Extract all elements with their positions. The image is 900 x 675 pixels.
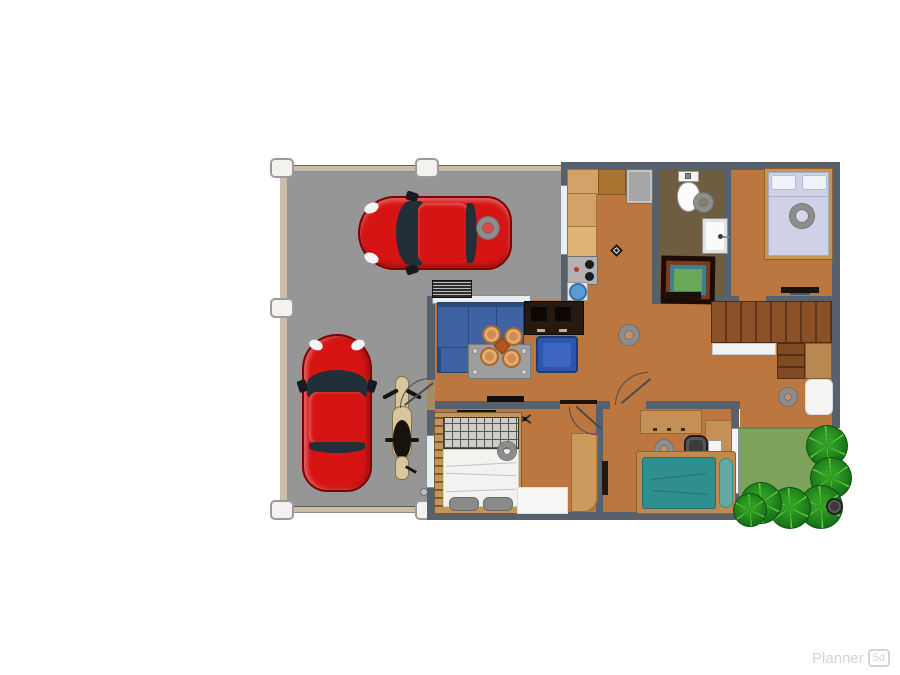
fridge[interactable] [626, 169, 653, 204]
plant-pot[interactable] [826, 498, 843, 515]
stairs-lower-run[interactable] [777, 343, 805, 379]
garage-beam-left [280, 165, 287, 513]
bedroom2-door-lintel [560, 400, 597, 404]
bedroom3-wall-shelf[interactable] [602, 461, 608, 495]
bed-pillow-left [449, 497, 479, 511]
washbasin[interactable] [702, 218, 728, 254]
stove-knob [574, 267, 579, 272]
car-roof [309, 392, 365, 444]
wall-right [832, 162, 840, 428]
motorcycle-peg-right [410, 438, 419, 442]
ceiling-light-stairs-hall [779, 388, 797, 406]
frame-layer-green [674, 269, 702, 291]
car-rear-window [466, 203, 477, 263]
table-bolt-4 [521, 369, 527, 375]
wall-bed3-out-upper [731, 401, 739, 430]
car-roof [418, 203, 468, 263]
stove[interactable] [567, 256, 598, 285]
sofa-cushion-line-1 [468, 307, 469, 347]
bush-6[interactable] [733, 493, 767, 527]
hall-wall-shelf[interactable] [666, 292, 701, 299]
pillar-top-left[interactable] [270, 158, 294, 178]
motorcycle-seat [393, 420, 411, 458]
hall-white-rug[interactable] [805, 379, 833, 415]
main-bedroom-tv-stand [790, 293, 810, 295]
sheet-fold-2 [446, 473, 516, 476]
cabinet-panel-1 [531, 307, 547, 321]
cabinet-mark-1 [537, 329, 545, 332]
wall-bedrooms-right [646, 401, 740, 409]
kitchen-round-sink[interactable] [569, 283, 587, 301]
ceiling-light-hall [619, 325, 639, 345]
sheet-fold-3 [446, 489, 516, 492]
bedroom2-bed[interactable] [434, 412, 522, 514]
watermark-brand: Planner [812, 650, 864, 667]
blanket-fold [769, 196, 829, 197]
living-south-tv[interactable] [487, 396, 524, 402]
armchair[interactable] [536, 336, 578, 373]
ceiling-light-bathroom [694, 193, 713, 212]
pillar-top-mid[interactable] [415, 158, 439, 178]
desk-knob-3 [681, 428, 685, 431]
car-rear-window [309, 442, 365, 453]
bed-pillow-right [483, 497, 513, 511]
ceiling-light-main-bedroom [790, 204, 814, 228]
toilet-button [685, 173, 691, 179]
stairs-upper-run[interactable] [711, 301, 832, 343]
single-bed-teal[interactable] [636, 451, 736, 514]
cabinet-panel-2 [555, 307, 571, 321]
wall-kitchen-bath [652, 162, 659, 303]
desk-knob-1 [653, 428, 657, 431]
kitchen-counter-top-dark[interactable] [598, 169, 626, 195]
pillow-left [771, 175, 796, 190]
blanket-fold-2 [653, 490, 708, 495]
teal-pillow [719, 458, 733, 508]
pillow-right [802, 175, 827, 190]
stairs-side-panel [805, 343, 832, 379]
pillar-bottom-left[interactable] [270, 500, 294, 520]
table-bolt-2 [521, 348, 527, 354]
kitchen-counter-left-light[interactable] [567, 226, 597, 257]
pillar-mid-left[interactable] [270, 298, 294, 318]
motorcycle-peg-left [385, 438, 394, 442]
planner5d-watermark: Planner 5d [812, 649, 890, 667]
cabinet-mark-2 [559, 329, 567, 332]
garage-door-handle [420, 488, 428, 496]
wardrobe[interactable] [571, 433, 598, 512]
bedroom2-white-rug[interactable] [517, 487, 568, 514]
wall-vent[interactable] [432, 280, 472, 298]
desk-knob-2 [667, 428, 671, 431]
bedroom3-desk[interactable] [640, 410, 702, 434]
armchair-seat [543, 343, 571, 367]
tv-cabinet[interactable] [524, 301, 584, 335]
car-red-vertical[interactable] [302, 334, 372, 492]
stairs-landing [712, 343, 776, 355]
stove-burner-2 [585, 272, 594, 281]
stove-burner-1 [585, 260, 594, 269]
ceiling-light-bedroom2 [498, 442, 516, 460]
faucet-pipe [723, 236, 729, 238]
teal-blanket [642, 457, 716, 509]
sheet-fold-1 [446, 462, 516, 467]
ceiling-light-car [477, 217, 499, 239]
floor-plan-canvas: Planner 5d [0, 0, 900, 675]
watermark-badge: 5d [868, 649, 890, 667]
blanket-fold-1 [651, 473, 706, 480]
fan-hub [523, 417, 527, 421]
dining-chair-3[interactable] [480, 347, 499, 366]
table-bolt-3 [472, 369, 478, 375]
wall-garage-living-upper [427, 296, 435, 380]
dining-chair-4[interactable] [502, 349, 521, 368]
table-bolt-1 [472, 348, 478, 354]
wall-bedrooms-left [427, 401, 560, 409]
